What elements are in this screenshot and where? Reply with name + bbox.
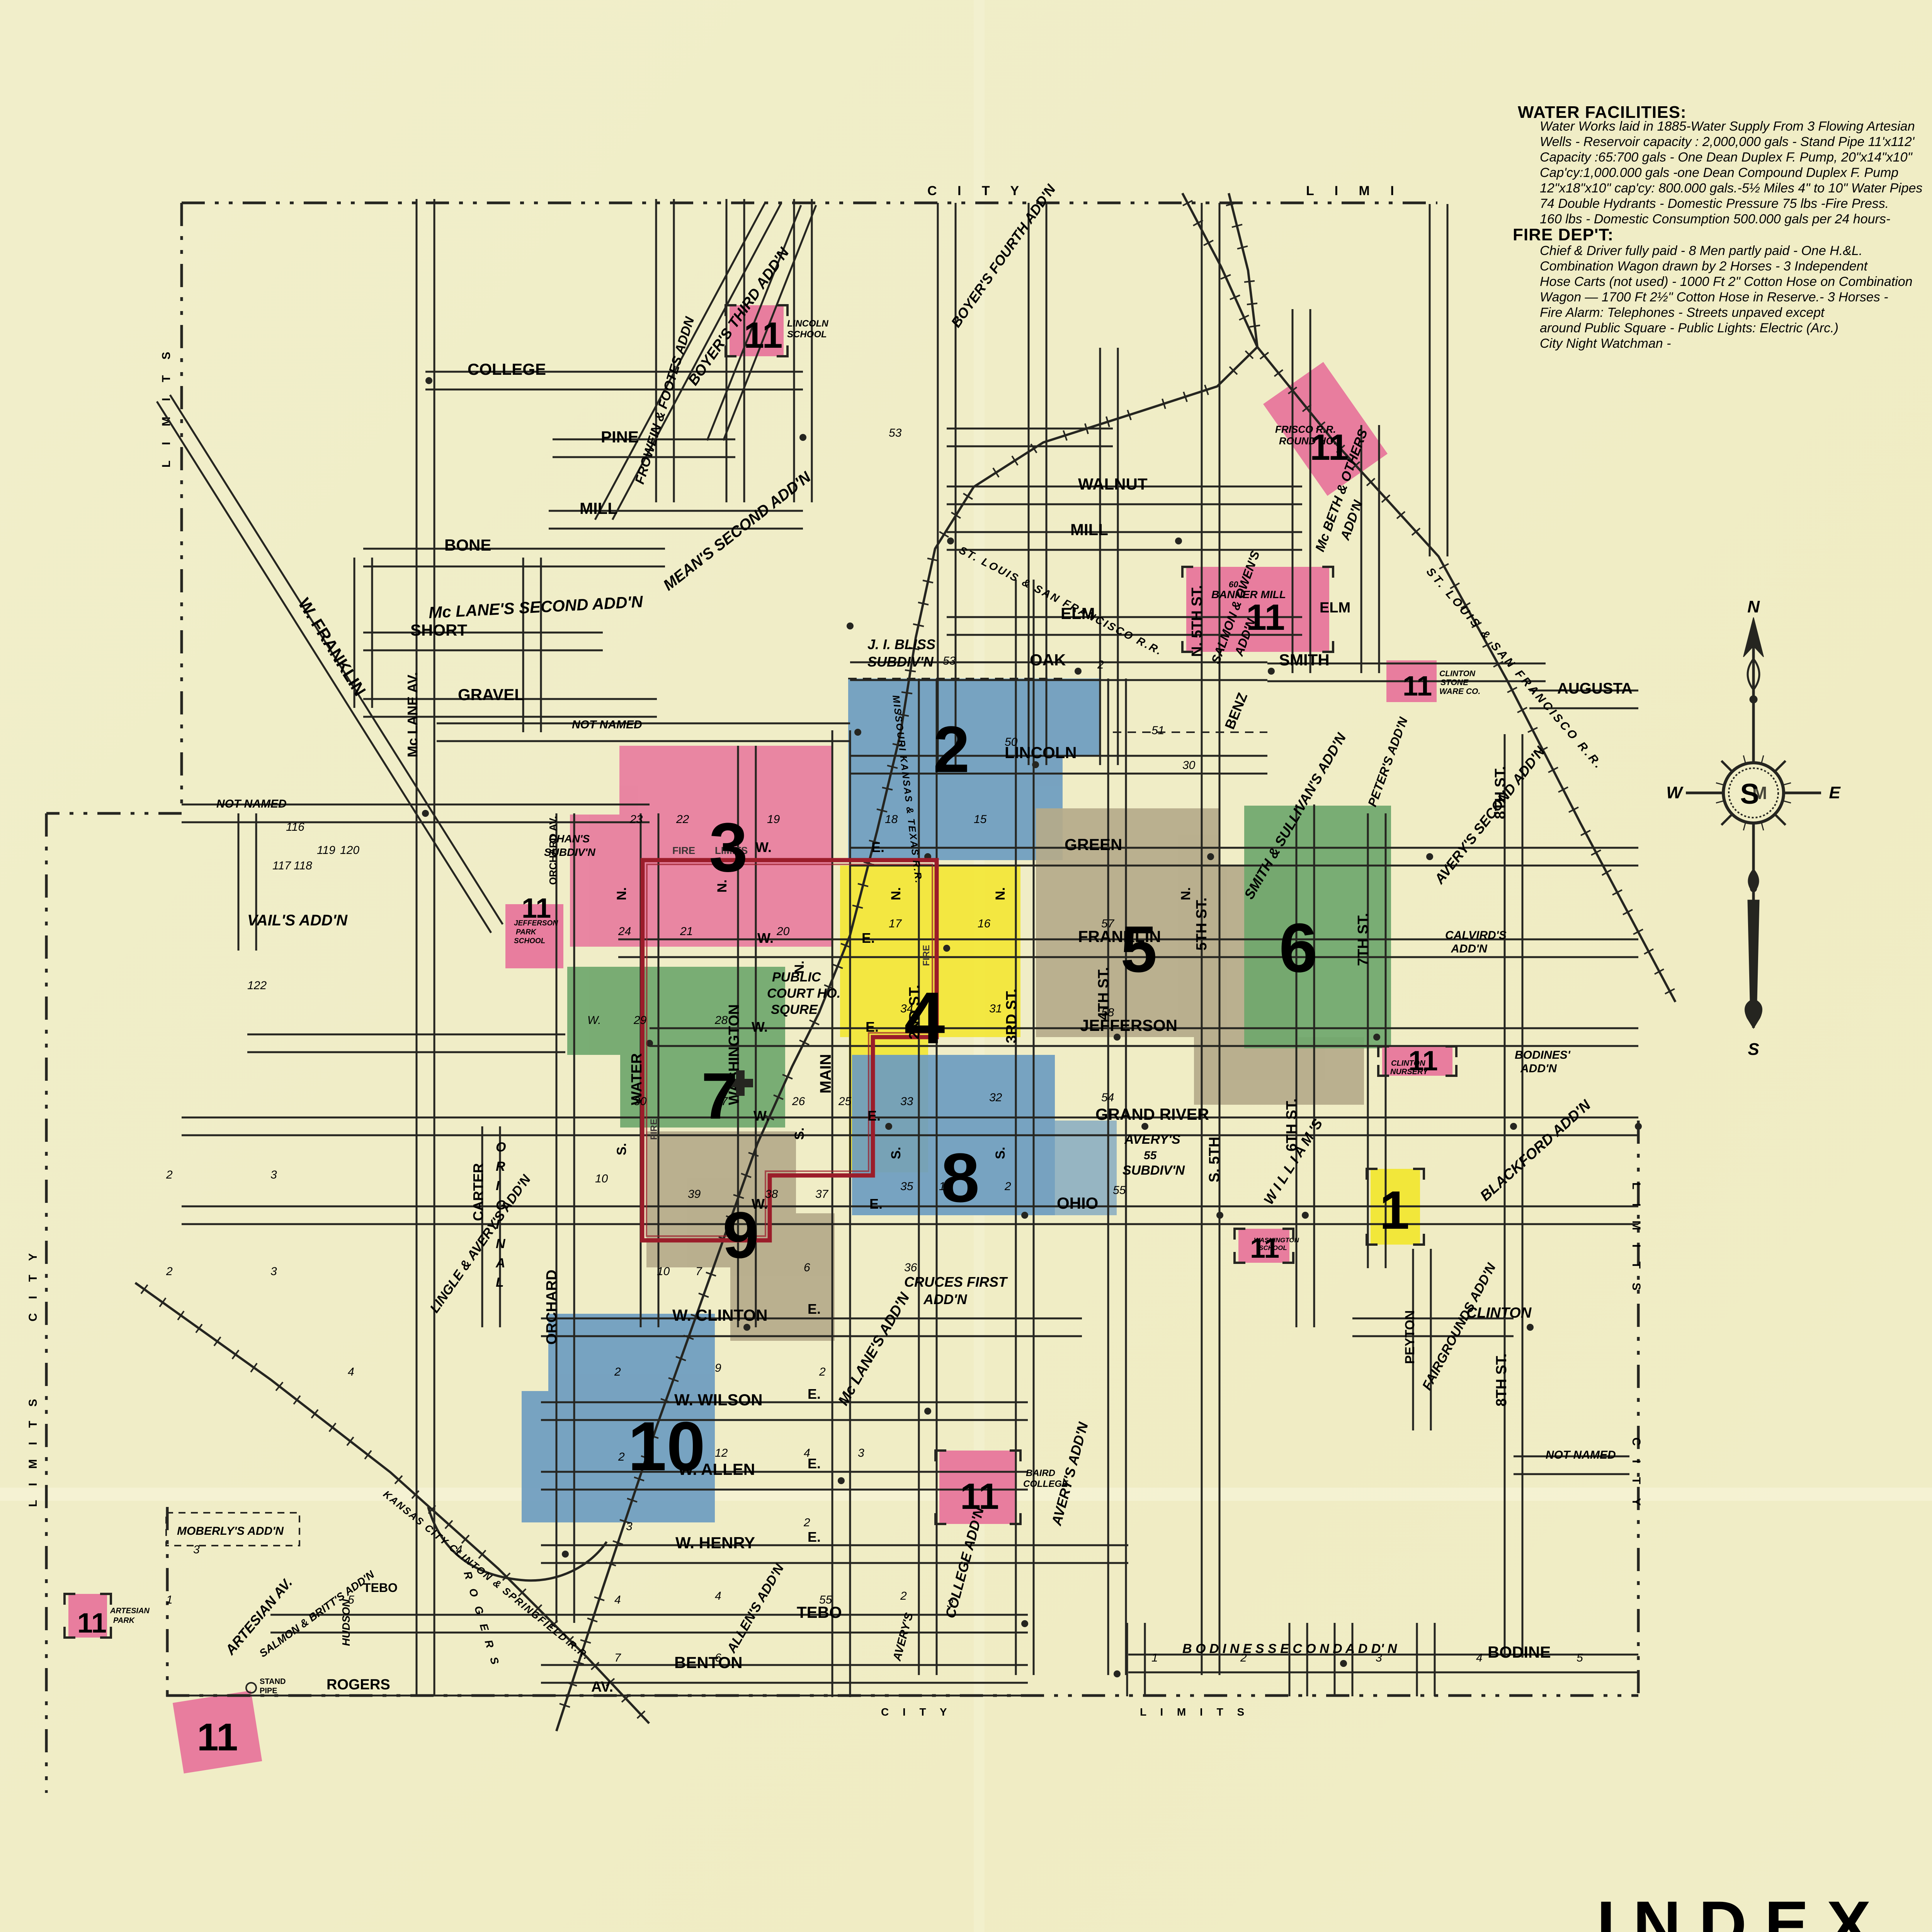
svg-text:1: 1 [166, 1594, 173, 1606]
svg-text:MILL: MILL [580, 499, 617, 517]
svg-text:E.: E. [871, 839, 884, 855]
svg-text:Capacity :65:700 gals - One De: Capacity :65:700 gals - One Dean Duplex … [1540, 150, 1913, 165]
svg-text:3: 3 [270, 1265, 277, 1278]
svg-text:30: 30 [634, 1095, 647, 1108]
svg-text:SCHOOL: SCHOOL [787, 329, 827, 340]
svg-text:C I T Y: C I T Y [27, 1248, 39, 1321]
svg-text:N. 5TH ST.: N. 5TH ST. [1189, 585, 1205, 657]
svg-text:3: 3 [858, 1447, 864, 1459]
svg-text:WALNUT: WALNUT [1078, 475, 1148, 493]
svg-text:ORCHARD: ORCHARD [544, 1270, 560, 1345]
svg-text:2: 2 [1240, 1651, 1247, 1664]
svg-text:N.: N. [993, 887, 1008, 900]
svg-text:OHIO: OHIO [1057, 1194, 1098, 1212]
svg-text:COLLEGE: COLLEGE [468, 360, 546, 378]
svg-text:ADD'N: ADD'N [923, 1291, 968, 1307]
svg-text:L I M I T S: L I M I T S [160, 346, 173, 468]
svg-text:25: 25 [838, 1095, 852, 1108]
svg-text:J. I. BLISS: J. I. BLISS [867, 636, 935, 652]
svg-text:W.: W. [753, 1108, 770, 1124]
svg-text:4: 4 [1476, 1651, 1483, 1664]
svg-text:S.: S. [889, 1147, 903, 1159]
svg-text:27: 27 [714, 1095, 728, 1108]
svg-text:Combination Wagon drawn by: Combination Wagon drawn by 2 Horses - 3 … [1540, 259, 1868, 274]
svg-text:W. WILSON: W. WILSON [674, 1391, 763, 1409]
svg-text:S.: S. [614, 1143, 629, 1155]
svg-text:120: 120 [340, 844, 359, 857]
svg-text:MAIN: MAIN [817, 1054, 834, 1094]
svg-text:4: 4 [348, 1366, 354, 1378]
svg-text:E.: E. [869, 1196, 883, 1212]
svg-text:PARK: PARK [113, 1616, 135, 1625]
svg-text:W. CLINTON: W. CLINTON [672, 1306, 768, 1324]
svg-text:L I M I: L I M I [1306, 184, 1403, 198]
svg-text:122: 122 [247, 979, 267, 992]
svg-text:SMITH: SMITH [1279, 651, 1330, 669]
svg-text:ADD'N: ADD'N [1451, 942, 1488, 955]
svg-text:City Night Watchman -: City Night Watchman - [1540, 336, 1671, 351]
svg-text:Cap'cy:1,000.000 gals -one Dea: Cap'cy:1,000.000 gals -one Dean Compound… [1540, 165, 1898, 180]
svg-text:L: L [496, 1275, 504, 1290]
svg-text:GREEN: GREEN [1065, 835, 1122, 854]
svg-text:11: 11 [1246, 597, 1285, 638]
svg-text:CARTER: CARTER [470, 1163, 486, 1221]
svg-text:PINE: PINE [601, 428, 639, 446]
svg-text:5: 5 [348, 1594, 354, 1606]
svg-text:Water Works laid in 1885-Wat: Water Works laid in 1885-Water Supply Fr… [1540, 119, 1915, 134]
svg-text:CHAN'S: CHAN'S [549, 833, 590, 845]
svg-text:S.: S. [993, 1147, 1008, 1159]
svg-text:GRAVEL: GRAVEL [458, 685, 524, 704]
svg-text:3: 3 [947, 1597, 953, 1610]
svg-text:ADD'N: ADD'N [1520, 1062, 1557, 1075]
svg-text:L I M I T S: L I M I T S [1630, 1182, 1643, 1296]
svg-text:A: A [495, 1256, 505, 1270]
svg-text:57: 57 [1101, 917, 1115, 930]
svg-text:PEYTON: PEYTON [1403, 1310, 1417, 1364]
svg-text:12: 12 [715, 1447, 728, 1459]
svg-text:CRUCES FIRST: CRUCES FIRST [904, 1274, 1008, 1290]
svg-text:18: 18 [885, 813, 898, 826]
svg-text:AVERY'S: AVERY'S [1124, 1132, 1180, 1147]
svg-text:L I M I T S: L I M I T S [27, 1394, 39, 1507]
svg-text:4: 4 [614, 1594, 621, 1606]
svg-text:OAK: OAK [1030, 651, 1066, 669]
svg-text:C I T Y: C I T Y [1630, 1437, 1643, 1511]
svg-text:53: 53 [889, 427, 902, 439]
svg-text:BODINES': BODINES' [1515, 1049, 1571, 1061]
svg-text:55: 55 [819, 1594, 832, 1606]
svg-text:10: 10 [595, 1172, 608, 1185]
svg-text:8: 8 [941, 1139, 980, 1217]
svg-text:60: 60 [1229, 580, 1238, 589]
svg-text:55: 55 [1113, 1184, 1126, 1197]
svg-text:BENTON: BENTON [674, 1653, 743, 1672]
svg-text:ROGERS: ROGERS [327, 1677, 390, 1693]
svg-text:51: 51 [1151, 724, 1164, 737]
svg-text:74 Double Hydrants - Domestic: 74 Double Hydrants - Domestic Pressure 7… [1540, 196, 1889, 211]
svg-text:3: 3 [626, 1520, 633, 1533]
svg-text:8TH ST.: 8TH ST. [1493, 1354, 1510, 1406]
svg-text:6: 6 [1279, 909, 1318, 987]
svg-text:JEFFERSON: JEFFERSON [1080, 1016, 1177, 1034]
svg-text:2: 2 [819, 1366, 826, 1378]
svg-text:NOT NAMED: NOT NAMED [572, 718, 642, 731]
svg-text:GRAND RIVER: GRAND RIVER [1095, 1105, 1209, 1123]
svg-text:STONE: STONE [1440, 678, 1469, 687]
svg-text:SQURE: SQURE [771, 1002, 818, 1017]
svg-text:2: 2 [900, 1590, 907, 1602]
svg-text:N.: N. [1179, 887, 1193, 900]
svg-text:11: 11 [960, 1476, 999, 1517]
svg-text:22: 22 [676, 813, 689, 826]
svg-text:R: R [496, 1159, 505, 1174]
svg-text:INDEX.: INDEX. [1597, 1888, 1925, 1932]
svg-text:COLLEGE: COLLEGE [1023, 1479, 1068, 1489]
svg-text:E.: E. [808, 1386, 821, 1402]
svg-text:21: 21 [680, 925, 693, 938]
svg-text:FIRE: FIRE [921, 945, 932, 966]
svg-text:19: 19 [767, 813, 780, 826]
svg-text:3: 3 [709, 809, 748, 886]
svg-text:30: 30 [1182, 759, 1196, 772]
svg-text:29: 29 [633, 1014, 647, 1027]
svg-text:160 lbs - Domestic Consumptio: 160 lbs - Domestic Consumption 500.000 g… [1540, 212, 1890, 226]
svg-text:1: 1 [939, 1180, 946, 1193]
svg-text:W.: W. [755, 839, 772, 855]
svg-text:CLINTON: CLINTON [1439, 669, 1476, 678]
svg-text:Hose Carts (not used) - 1000 F: Hose Carts (not used) - 1000 Ft 2" Cotto… [1540, 274, 1913, 289]
svg-text:Chief & Driver fully paid -: Chief & Driver fully paid - 8 Men partly… [1540, 243, 1862, 258]
svg-text:SUBDIV'N: SUBDIV'N [544, 846, 595, 858]
svg-text:E.: E. [866, 1019, 879, 1035]
svg-text:SUBDIV'N: SUBDIV'N [867, 654, 934, 670]
svg-text:around Public Square - Publi: around Public Square - Public Lights: El… [1540, 321, 1838, 335]
svg-text:N.: N. [889, 887, 903, 900]
svg-text:2: 2 [1004, 1180, 1011, 1193]
svg-text:PUBLIC: PUBLIC [772, 970, 821, 985]
svg-text:C I T Y: C I T Y [927, 184, 1027, 198]
svg-text:16: 16 [978, 917, 991, 930]
svg-text:9: 9 [723, 1199, 759, 1272]
svg-text:FIRE DEP'T:: FIRE DEP'T: [1513, 225, 1614, 244]
svg-text:PARK: PARK [516, 928, 537, 936]
svg-text:2: 2 [166, 1168, 173, 1181]
svg-text:W.: W. [757, 930, 774, 946]
svg-text:O: O [496, 1140, 506, 1155]
svg-text:36: 36 [904, 1261, 917, 1274]
svg-text:34: 34 [900, 1002, 913, 1015]
svg-text:38: 38 [765, 1188, 778, 1201]
svg-text:3: 3 [270, 1168, 277, 1181]
svg-text:5TH ST.: 5TH ST. [1194, 898, 1210, 951]
svg-text:E.: E. [867, 1108, 881, 1124]
svg-text:W.: W. [587, 1014, 601, 1027]
svg-text:6: 6 [715, 1651, 721, 1664]
svg-text:7: 7 [614, 1651, 621, 1664]
svg-text:11: 11 [197, 1716, 238, 1759]
svg-text:VAIL'S ADD'N: VAIL'S ADD'N [247, 912, 348, 929]
svg-text:11: 11 [1408, 1046, 1438, 1077]
svg-text:FIRE: FIRE [672, 845, 695, 856]
svg-text:35: 35 [900, 1180, 913, 1193]
svg-text:39: 39 [688, 1188, 701, 1201]
svg-text:S.: S. [792, 1128, 807, 1140]
svg-text:50: 50 [1005, 736, 1018, 748]
svg-text:2: 2 [803, 1516, 810, 1529]
svg-text:11: 11 [1403, 671, 1432, 702]
svg-text:9: 9 [715, 1362, 721, 1374]
svg-text:119: 119 [317, 844, 335, 857]
svg-text:3: 3 [193, 1543, 200, 1556]
svg-text:AV.: AV. [591, 1679, 613, 1695]
svg-text:55: 55 [1144, 1149, 1157, 1162]
svg-text:53: 53 [943, 655, 956, 667]
svg-text:118: 118 [294, 859, 312, 872]
svg-text:12"x18"x10" cap'cy: 800.000 g: 12"x18"x10" cap'cy: 800.000 gals.-5½ Mil… [1540, 181, 1922, 196]
svg-text:E.: E. [862, 930, 875, 946]
svg-text:FIRE: FIRE [649, 1119, 659, 1140]
svg-text:N: N [496, 1236, 506, 1251]
svg-text:I: I [496, 1217, 500, 1232]
svg-text:11: 11 [77, 1608, 107, 1639]
svg-text:ELM: ELM [1320, 600, 1350, 616]
svg-text:11: 11 [1250, 1233, 1279, 1264]
svg-text:37: 37 [815, 1188, 829, 1201]
svg-text:W.: W. [752, 1019, 768, 1035]
svg-text:CALVIRD'S: CALVIRD'S [1445, 929, 1507, 942]
svg-text:Wells - Reservoir capacity :: Wells - Reservoir capacity : 2,000,000 g… [1540, 134, 1915, 149]
svg-text:54: 54 [1101, 1091, 1114, 1104]
svg-text:10: 10 [657, 1265, 670, 1278]
svg-text:117: 117 [272, 859, 291, 872]
svg-text:ARTESIAN: ARTESIAN [110, 1607, 150, 1615]
svg-text:BAIRD: BAIRD [1026, 1468, 1055, 1478]
svg-text:LINCOLN: LINCOLN [787, 318, 828, 329]
svg-text:28: 28 [714, 1014, 728, 1027]
svg-text:3: 3 [1376, 1651, 1382, 1664]
svg-text:PIPE: PIPE [260, 1687, 277, 1695]
svg-text:6: 6 [804, 1261, 810, 1274]
svg-text:I: I [496, 1179, 500, 1193]
svg-text:4: 4 [904, 977, 945, 1059]
svg-text:10: 10 [628, 1408, 705, 1485]
svg-text:WARE CO.: WARE CO. [1439, 687, 1480, 696]
svg-text:1: 1 [1151, 1651, 1158, 1664]
svg-text:15: 15 [974, 813, 987, 826]
svg-text:58: 58 [1101, 1006, 1114, 1019]
svg-text:BONE: BONE [444, 536, 491, 554]
svg-text:26: 26 [792, 1095, 805, 1108]
svg-text:11: 11 [1310, 427, 1349, 468]
svg-text:Fire Alarm: Telephones - Str: Fire Alarm: Telephones - Streets unpaved… [1540, 305, 1825, 320]
svg-text:2: 2 [618, 1451, 625, 1463]
svg-text:AUGUSTA: AUGUSTA [1557, 680, 1633, 697]
svg-text:SCHOOL: SCHOOL [514, 937, 545, 945]
svg-text:B O D I N E S S E C O N D: B O D I N E S S E C O N D A D D' N [1182, 1641, 1398, 1656]
svg-text:2: 2 [614, 1366, 621, 1378]
svg-text:2: 2 [933, 713, 970, 786]
svg-text:S. 5TH: S. 5TH [1206, 1137, 1223, 1182]
svg-text:W: W [1666, 783, 1684, 802]
svg-text:E: E [1829, 783, 1841, 802]
svg-text:N.: N. [614, 887, 629, 900]
svg-text:BODINE: BODINE [1488, 1643, 1551, 1661]
svg-text:116: 116 [286, 821, 304, 833]
svg-text:32: 32 [989, 1091, 1002, 1104]
svg-text:7TH ST.: 7TH ST. [1355, 913, 1371, 966]
svg-text:7: 7 [696, 1265, 702, 1278]
svg-text:E.: E. [808, 1529, 821, 1545]
svg-text:11: 11 [522, 893, 551, 924]
svg-text:MILL: MILL [1070, 520, 1108, 539]
svg-text:E.: E. [808, 1301, 821, 1317]
svg-text:11: 11 [744, 315, 782, 356]
svg-text:STAND: STAND [260, 1677, 286, 1686]
svg-text:N: N [1747, 597, 1760, 616]
svg-text:4: 4 [715, 1590, 721, 1602]
svg-text:Wagon — 1700 Ft 2½" Cotton Ho: Wagon — 1700 Ft 2½" Cotton Hose in Reser… [1540, 290, 1888, 304]
svg-text:COURT HO.: COURT HO. [767, 986, 840, 1001]
svg-text:M: M [1752, 783, 1767, 803]
svg-text:S: S [1748, 1040, 1759, 1059]
svg-text:5: 5 [1577, 1651, 1583, 1664]
svg-text:L I M I T S: L I M I T S [1140, 1706, 1250, 1718]
svg-text:SHORT: SHORT [410, 621, 467, 639]
svg-text:24: 24 [618, 925, 631, 938]
svg-text:4: 4 [456, 1543, 463, 1556]
svg-text:20: 20 [776, 925, 790, 938]
svg-text:NOT NAMED: NOT NAMED [216, 798, 287, 810]
svg-text:SUBDIV'N: SUBDIV'N [1122, 1163, 1185, 1178]
svg-text:4: 4 [804, 1447, 810, 1459]
svg-text:31: 31 [989, 1002, 1002, 1015]
svg-text:17: 17 [889, 917, 902, 930]
svg-text:5: 5 [1121, 913, 1157, 986]
svg-text:CLINTON: CLINTON [1466, 1305, 1532, 1321]
svg-text:NOT NAMED: NOT NAMED [1546, 1449, 1616, 1461]
svg-text:MOBERLY'S ADD'N: MOBERLY'S ADD'N [177, 1525, 284, 1537]
svg-text:3RD ST.: 3RD ST. [1003, 989, 1020, 1043]
svg-text:W. HENRY: W. HENRY [675, 1534, 755, 1552]
svg-text:33: 33 [900, 1095, 913, 1108]
svg-text:2: 2 [166, 1265, 173, 1278]
svg-text:2: 2 [1097, 658, 1104, 671]
svg-text:23: 23 [629, 813, 643, 826]
svg-text:G: G [496, 1198, 506, 1213]
svg-text:Mc LANE AV.: Mc LANE AV. [405, 672, 420, 757]
svg-text:C I T Y: C I T Y [881, 1706, 952, 1718]
svg-text:1: 1 [1379, 1180, 1410, 1240]
